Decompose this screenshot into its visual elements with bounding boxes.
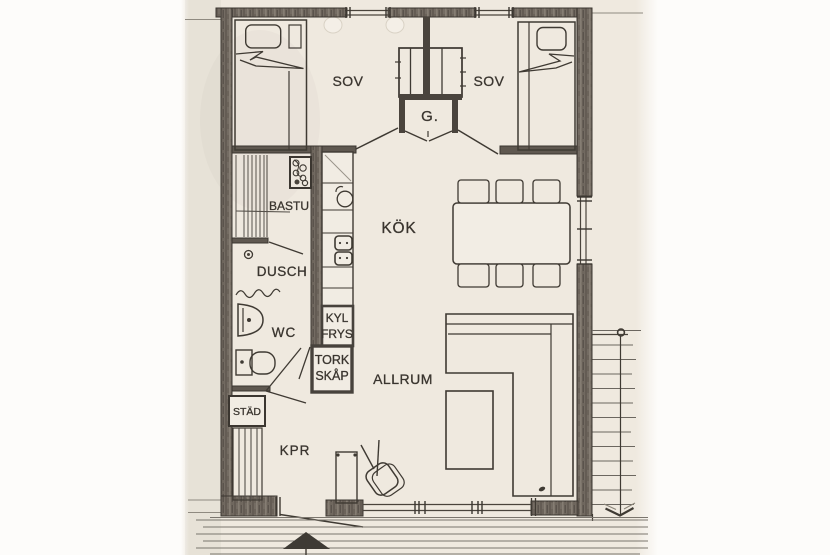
svg-text:FRYS: FRYS — [321, 327, 353, 341]
svg-text:KYL: KYL — [326, 311, 349, 325]
svg-text:KÖK: KÖK — [381, 219, 416, 237]
svg-text:SKÅP: SKÅP — [315, 368, 348, 383]
svg-text:G.: G. — [421, 108, 439, 125]
svg-text:SOV: SOV — [332, 73, 363, 89]
svg-text:KPR: KPR — [280, 443, 311, 458]
svg-text:STÄD: STÄD — [233, 406, 261, 418]
svg-text:ALLRUM: ALLRUM — [373, 371, 433, 387]
svg-text:TORK: TORK — [315, 353, 350, 367]
svg-text:BASTU: BASTU — [269, 199, 309, 213]
svg-text:WC: WC — [272, 325, 297, 340]
svg-text:SOV: SOV — [473, 73, 504, 89]
svg-text:DUSCH: DUSCH — [257, 264, 308, 279]
